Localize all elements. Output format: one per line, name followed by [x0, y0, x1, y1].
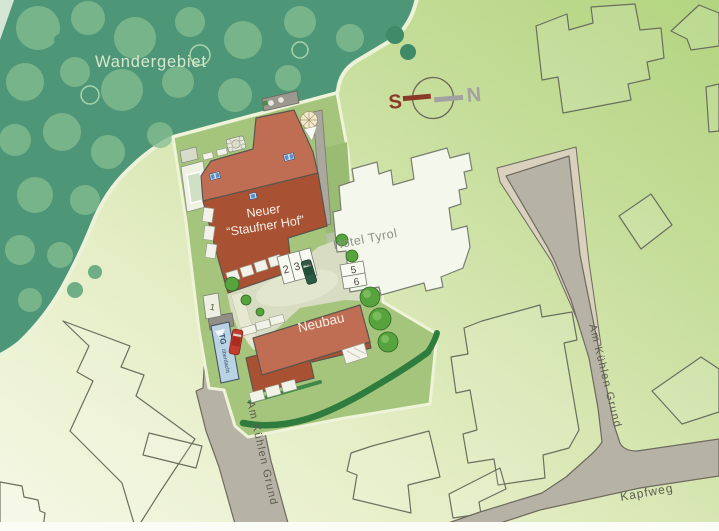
compass-south-label: S: [388, 91, 403, 114]
compass-north-label: N: [466, 84, 482, 107]
site-plan: S N Wandergebiet Neuer “Staufner Hof” Ho…: [0, 0, 719, 531]
area-label-wandergebiet: Wandergebiet: [95, 53, 207, 71]
neighbor-building-outline: [706, 84, 719, 132]
garage-ramp-label-abbr: TG: [217, 333, 228, 346]
site-plan-canvas: S N Wandergebiet Neuer “Staufner Hof” Ho…: [0, 0, 719, 531]
bottom-margin: [0, 522, 719, 531]
